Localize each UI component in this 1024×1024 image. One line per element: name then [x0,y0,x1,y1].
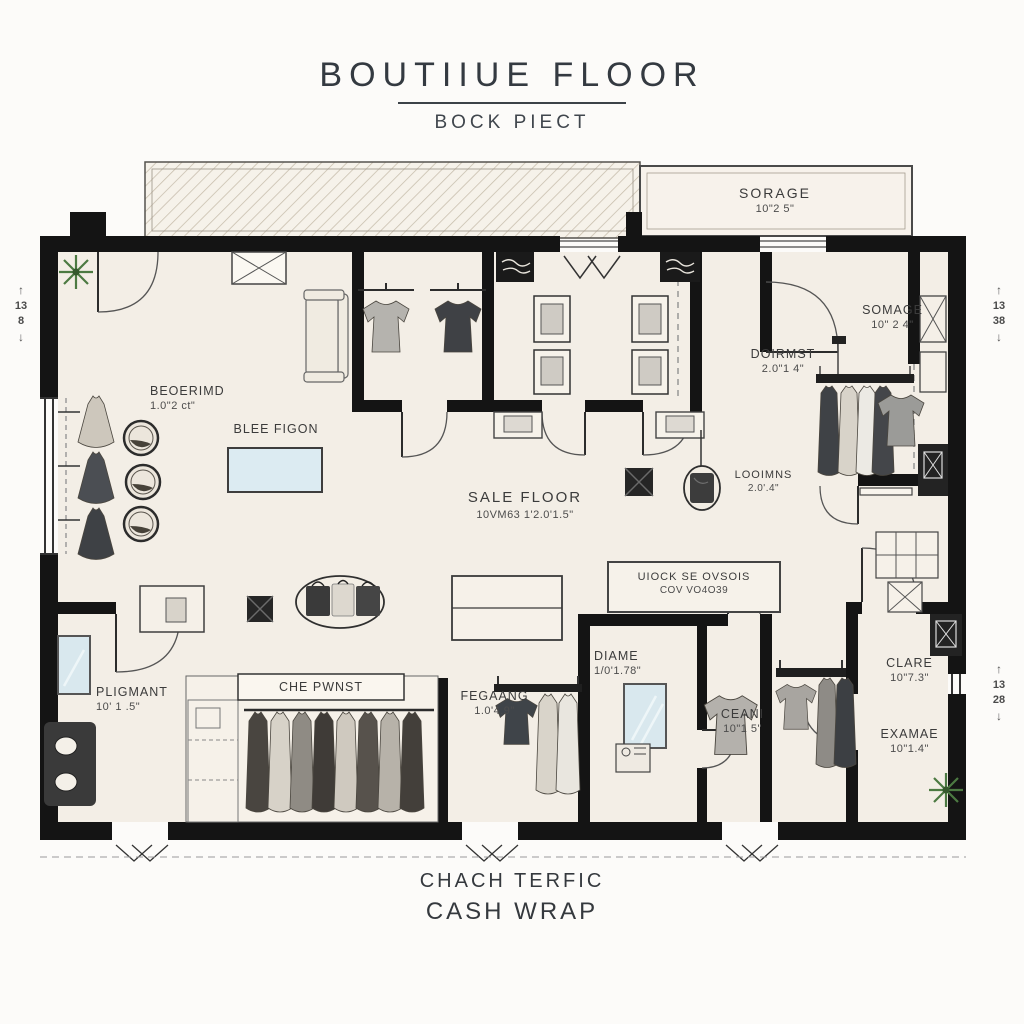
dim-arrow-up-icon: ↑ [996,662,1002,676]
dim-arrow-down-icon: ↓ [996,709,1002,723]
plant-icon [59,255,93,289]
room-dims: 1/0'1.78" [594,664,689,678]
room-label-looimns: LOOIMNS 2.0'.4" [716,468,811,495]
deck-patio [145,162,640,238]
room-dims: 10"1 5" [700,722,785,736]
closet-wardrobe [186,674,438,822]
room-dims: 2.0'.4" [716,482,811,495]
room-label-regaang: FEGAANG 1.0'4.9" [442,688,547,719]
room-label-somage: SOMAGE 10" 2 4" [840,302,945,333]
sofa [304,290,348,382]
dim-arrow-down-icon: ↓ [996,330,1002,344]
dim-value: 13 [993,300,1005,312]
dim-value: 28 [993,694,1005,706]
room-label-ceani: CEANI 10"1 5" [700,706,785,737]
room-name: DOIRMST [733,346,833,362]
title-underline [398,102,626,104]
title-block: BOUTIIUE FLOOR BOCK PIECT [0,56,1024,134]
dim-value: 13 [15,300,27,312]
room-dims: 10" 2 4" [840,318,945,332]
footer-line2: CASH WRAP [0,898,1024,926]
plan-title: BOUTIIUE FLOOR [0,56,1024,95]
entry-zigzag-marks [116,845,778,861]
side-table [140,586,204,632]
dim-arrow-down-icon: ↓ [18,330,24,344]
room-name: BLEE FIGON [226,421,326,437]
dimension-marker-right-bottom: ↑ 13 28 ↓ [986,662,1012,723]
oval-display-table [296,576,384,628]
room-label-chepwnst: CHE PWNST [240,679,402,695]
skylight-panel [228,448,322,492]
footer-block: CHACH TERFIC CASH WRAP [0,870,1024,926]
footer-line1: CHACH TERFIC [0,870,1024,893]
dim-value: 38 [993,315,1005,327]
room-label-beoerimd: BEOERIMD 1.0"2 ct" [150,383,270,414]
room-name: FEGAANG [442,688,547,704]
room-dims: 10"1.4" [862,742,957,756]
room-dims: 2.0"1 4" [733,362,833,376]
room-name: CEANI [700,706,785,722]
room-label-pligmant: PLIGMANT 10' 1 .5" [96,684,211,715]
corridor-rail [860,488,912,495]
dimension-marker-right-top: ↑ 13 38 ↓ [986,283,1012,344]
room-name: PLIGMANT [96,684,211,700]
room-name: SORAGE [700,184,850,202]
dim-value: 8 [18,315,24,327]
xbox-fixture [232,252,286,284]
room-name: DIAME [594,648,689,664]
room-dims: 1.0"2 ct" [150,399,270,413]
dim-value: 13 [993,679,1005,691]
room-name: LOOIMNS [716,468,811,482]
plant-icon [929,773,963,807]
room-name: SALE FLOOR [450,488,600,508]
room-name: UIOCK SE OVSOIS [610,570,778,584]
room-dims: 10"2 5" [700,202,850,216]
dim-arrow-up-icon: ↑ [18,283,24,297]
room-label-sale-floor: SALE FLOOR 10VM63 1'2.0'1.5" [450,488,600,522]
room-label-blee-figon: BLEE FIGON [226,421,326,437]
room-name: EXAMAE [862,726,957,742]
dim-arrow-up-icon: ↑ [996,283,1002,297]
rect-display-table [452,576,562,640]
room-label-doirmst: DOIRMST 2.0"1 4" [733,346,833,377]
room-name: CHE PWNST [240,679,402,695]
room-label-uiock: UIOCK SE OVSOIS COV VO4O39 [610,570,778,597]
room-dims: COV VO4O39 [610,584,778,597]
room-label-diame: DIAME 1/0'1.78" [594,648,689,679]
room-label-examae: EXAMAE 10"1.4" [862,726,957,757]
room-dims: 10"7.3" [862,671,957,685]
room-dims: 1.0'4.9" [442,704,547,718]
room-dims: 10' 1 .5" [96,700,211,714]
room-dims: 10VM63 1'2.0'1.5" [450,508,600,522]
dimension-marker-left: ↑ 13 8 ↓ [8,283,34,344]
room-name: CLARE [862,655,957,671]
plan-subtitle: BOCK PIECT [0,112,1024,134]
room-label-clare: CLARE 10"7.3" [862,655,957,686]
room-name: BEOERIMD [150,383,270,399]
round-display-tables [124,421,160,541]
room-name: SOMAGE [840,302,945,318]
room-label-sorage: SORAGE 10"2 5" [700,184,850,216]
floor-plan-canvas: BOUTIIUE FLOOR BOCK PIECT SORAGE 10"2 5"… [0,0,1024,1024]
